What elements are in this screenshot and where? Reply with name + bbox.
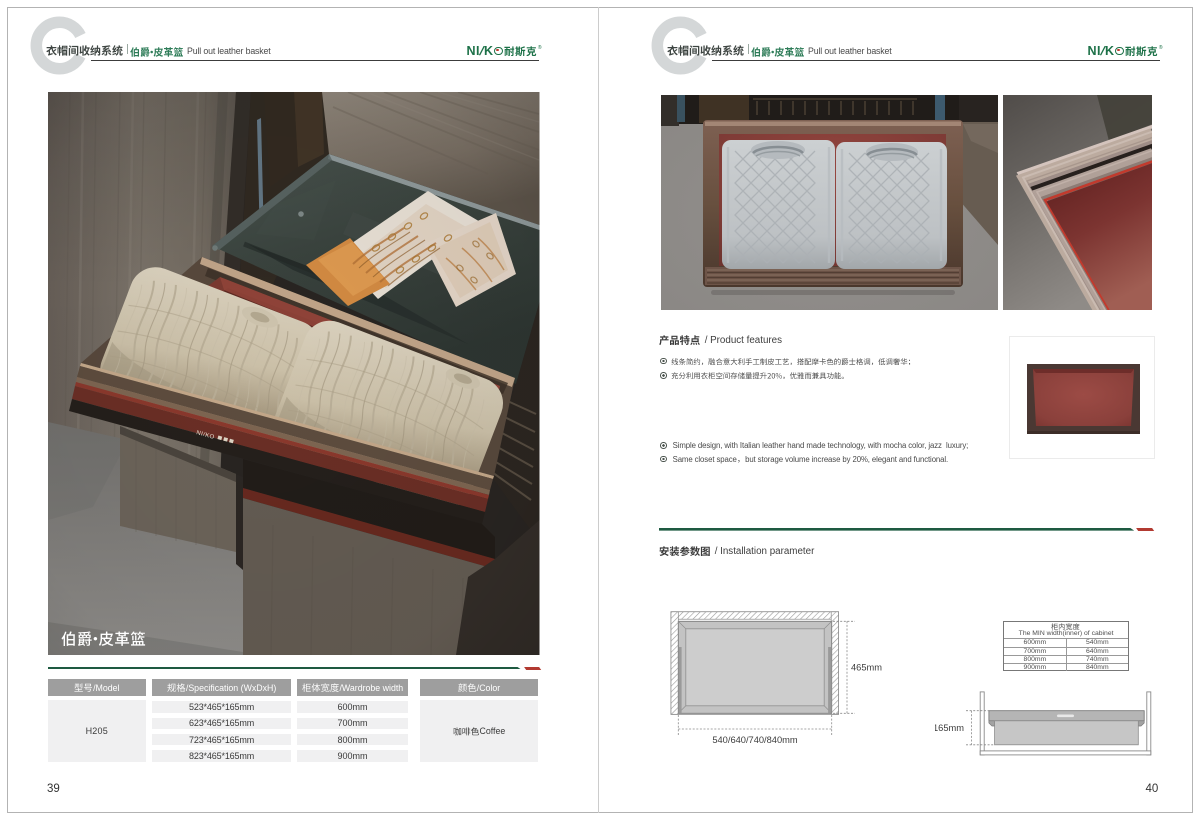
svg-text:540/640/740/840mm: 540/640/740/840mm xyxy=(712,735,798,745)
svg-text:165mm: 165mm xyxy=(935,723,964,733)
svg-text:465mm: 465mm xyxy=(851,663,882,673)
